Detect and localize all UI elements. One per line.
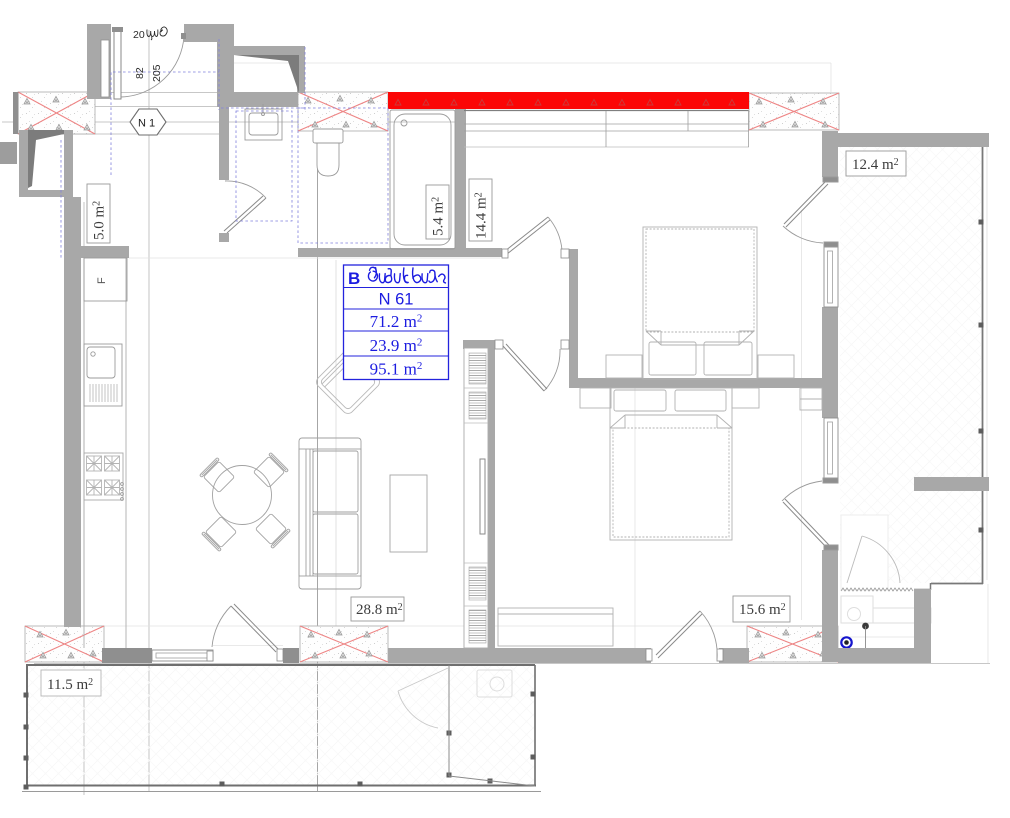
svg-text:95.1 m2: 95.1 m2	[370, 360, 423, 379]
svg-text:15.6 m2: 15.6 m2	[739, 602, 786, 618]
svg-text:14.4 m2: 14.4 m2	[474, 192, 490, 239]
svg-text:5.0 m2: 5.0 m2	[92, 201, 108, 240]
svg-text:B: B	[348, 269, 360, 288]
svg-text:82: 82	[134, 67, 146, 79]
svg-text:11.5 m2: 11.5 m2	[47, 677, 93, 693]
svg-text:5.4 m2: 5.4 m2	[431, 197, 447, 236]
svg-text:12.4 m2: 12.4 m2	[852, 157, 899, 173]
svg-text:N 61: N 61	[379, 291, 414, 309]
svg-text:205: 205	[151, 64, 163, 82]
svg-text:23.9 m2: 23.9 m2	[370, 336, 423, 355]
svg-text:28.8 m2: 28.8 m2	[356, 602, 403, 618]
svg-text:71.2 m2: 71.2 m2	[370, 312, 423, 331]
svg-text:F: F	[96, 277, 108, 284]
svg-text:20: 20	[133, 29, 145, 41]
svg-text:N 1: N 1	[138, 118, 155, 130]
